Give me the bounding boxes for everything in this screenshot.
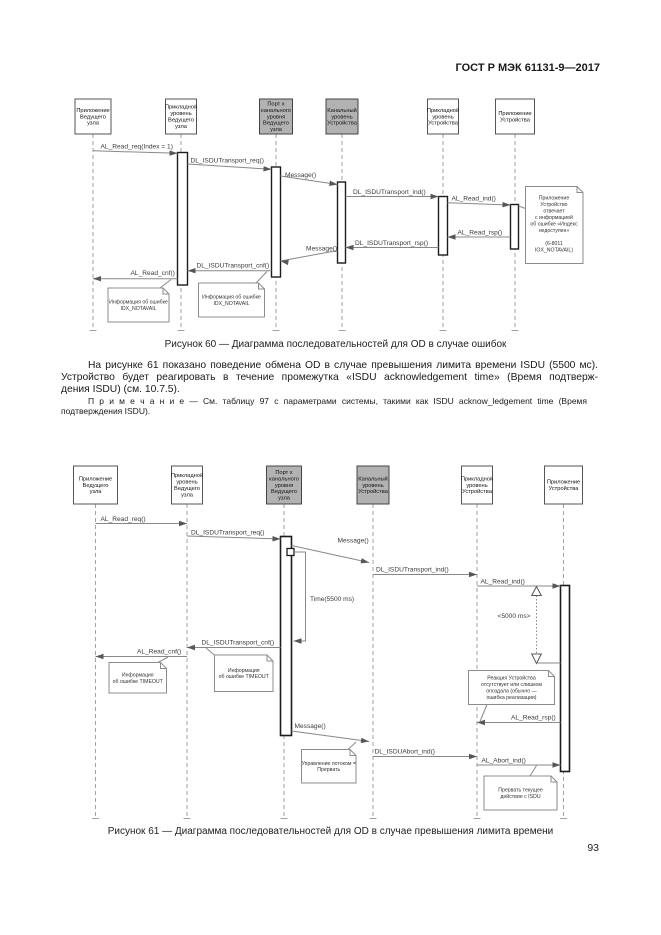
svg-text:уровень: уровень xyxy=(170,111,191,117)
svg-text:уровень: уровень xyxy=(362,483,383,489)
svg-text:AL_Read_rsp(): AL_Read_rsp() xyxy=(511,715,556,722)
svg-text:Устройства: Устройства xyxy=(428,120,459,127)
svg-text:узла: узла xyxy=(270,127,283,133)
svg-text:уровня: уровня xyxy=(275,483,293,489)
svg-text:Устройства: Устройства xyxy=(358,488,389,495)
svg-text:Time(5500 ms): Time(5500 ms) xyxy=(310,596,354,603)
svg-text:AL_Read_ind(): AL_Read_ind() xyxy=(481,579,525,586)
svg-text:уровень: уровень xyxy=(466,483,487,489)
svg-text:(6-8011: (6-8011 xyxy=(545,241,563,247)
svg-text:узла: узла xyxy=(87,121,100,127)
svg-text:отвечает: отвечает xyxy=(543,209,565,215)
svg-text:Информация об ошибке: Информация об ошибке xyxy=(109,300,168,306)
svg-text:Информация: Информация xyxy=(228,668,260,674)
svg-text:DL_ISDUTransport_req(): DL_ISDUTransport_req() xyxy=(191,158,264,165)
svg-text:DL_ISDUTransport_cnf(): DL_ISDUTransport_cnf() xyxy=(202,640,275,647)
svg-text:DL_ISDUTransport_ind(): DL_ISDUTransport_ind() xyxy=(376,567,449,574)
svg-text:с информацией: с информацией xyxy=(535,214,573,221)
svg-text:Прикладной: Прикладной xyxy=(427,107,459,114)
svg-text:Ведущего: Ведущего xyxy=(80,114,106,120)
svg-text:Реакция Устройства: Реакция Устройства xyxy=(487,675,536,682)
svg-text:Приложение: Приложение xyxy=(498,111,531,117)
svg-text:узла: узла xyxy=(175,124,188,130)
svg-text:Ведущего: Ведущего xyxy=(168,118,194,124)
svg-text:уровень: уровень xyxy=(176,480,197,486)
svg-text:Приложение: Приложение xyxy=(79,476,112,482)
svg-text:Прикладной: Прикладной xyxy=(171,472,203,479)
svg-text:Устройства: Устройства xyxy=(462,488,493,495)
svg-text:Приложение: Приложение xyxy=(547,480,580,486)
svg-text:Прервать текущее: Прервать текущее xyxy=(498,788,543,794)
svg-text:IDX_NOTAVAIL: IDX_NOTAVAIL xyxy=(213,301,249,307)
svg-text:об ошибке TIMEOUT: об ошибке TIMEOUT xyxy=(219,674,270,680)
svg-text:DL_ISDUAbort_ind(): DL_ISDUAbort_ind() xyxy=(375,749,435,756)
svg-text:Message(): Message() xyxy=(338,538,369,545)
svg-text:об ошибке TIMEOUT: об ошибке TIMEOUT xyxy=(113,679,164,685)
svg-text:DL_ISDUTransport_rsp(): DL_ISDUTransport_rsp() xyxy=(355,240,428,247)
svg-text:Устройства: Устройства xyxy=(327,120,358,127)
svg-text:DL_ISDUTransport_ind(): DL_ISDUTransport_ind() xyxy=(353,189,426,196)
svg-text:Канальный: Канальный xyxy=(327,107,356,114)
svg-text:DL_ISDUTransport_req(): DL_ISDUTransport_req() xyxy=(191,530,264,537)
svg-text:опоздала (обычно —: опоздала (обычно — xyxy=(486,689,537,695)
svg-text:ошибка реализации): ошибка реализации) xyxy=(487,695,537,701)
svg-text:узла: узла xyxy=(278,496,291,502)
svg-text:<5000 ms>: <5000 ms> xyxy=(498,613,531,620)
svg-text:узла: узла xyxy=(181,492,194,498)
svg-text:AL_Read_cnf(): AL_Read_cnf() xyxy=(137,649,181,656)
svg-text:канального: канального xyxy=(269,476,299,482)
svg-text:отсутствует или слишком: отсутствует или слишком xyxy=(481,682,542,688)
svg-text:AL_Read_cnf(): AL_Read_cnf() xyxy=(131,270,175,277)
svg-text:Канальный: Канальный xyxy=(358,475,387,482)
svg-text:AL_Read_req(Index = 1): AL_Read_req(Index = 1) xyxy=(101,144,173,151)
svg-text:Message(): Message() xyxy=(285,172,316,179)
svg-text:канального: канального xyxy=(261,108,291,114)
svg-text:Message(): Message() xyxy=(306,246,337,253)
svg-text:IDX_NOTAVAIL: IDX_NOTAVAIL xyxy=(120,306,156,312)
svg-text:Прикладной: Прикладной xyxy=(461,475,493,482)
svg-text:Приложение: Приложение xyxy=(76,108,109,114)
svg-text:Ведущего: Ведущего xyxy=(174,486,200,492)
svg-text:уровень: уровень xyxy=(432,114,453,120)
svg-text:Прервать: Прервать xyxy=(317,767,340,773)
svg-text:Ведущего: Ведущего xyxy=(83,483,109,489)
svg-text:Ведущего: Ведущего xyxy=(271,489,297,495)
svg-text:Управление потоком =: Управление потоком = xyxy=(302,761,356,767)
svg-text:Устройство: Устройство xyxy=(540,201,567,208)
svg-text:уровень: уровень xyxy=(331,114,352,120)
svg-text:Устройства: Устройства xyxy=(500,117,531,124)
svg-text:AL_Read_req(): AL_Read_req() xyxy=(101,516,146,523)
svg-text:AL_Abort_ind(): AL_Abort_ind() xyxy=(482,758,526,765)
svg-text:действие с ISDU: действие с ISDU xyxy=(500,793,540,800)
svg-text:DL_ISDUTransport_cnf(): DL_ISDUTransport_cnf() xyxy=(197,263,270,270)
svg-text:AL_Read_rsp(): AL_Read_rsp() xyxy=(458,230,503,237)
svg-text:Порт x: Порт x xyxy=(275,470,292,476)
svg-text:Информация об ошибке: Информация об ошибке xyxy=(202,295,261,301)
svg-text:Ведущего: Ведущего xyxy=(263,121,289,127)
svg-text:Информация: Информация xyxy=(122,672,154,678)
svg-text:Приложение: Приложение xyxy=(539,196,570,202)
svg-text:Устройства: Устройства xyxy=(549,485,580,492)
svg-text:Прикладной: Прикладной xyxy=(165,104,197,111)
svg-text:об ошибке «Индекс: об ошибке «Индекс xyxy=(530,222,578,228)
svg-text:уровня: уровня xyxy=(267,114,285,120)
svg-text:AL_Read_ind(): AL_Read_ind() xyxy=(452,196,496,203)
svg-text:Порт x: Порт x xyxy=(267,102,284,108)
svg-text:IOX_NOTAVAIL): IOX_NOTAVAIL) xyxy=(535,248,573,254)
svg-text:недоступен»: недоступен» xyxy=(539,228,570,234)
svg-text:узла: узла xyxy=(90,489,103,495)
svg-text:Message(): Message() xyxy=(295,723,326,730)
